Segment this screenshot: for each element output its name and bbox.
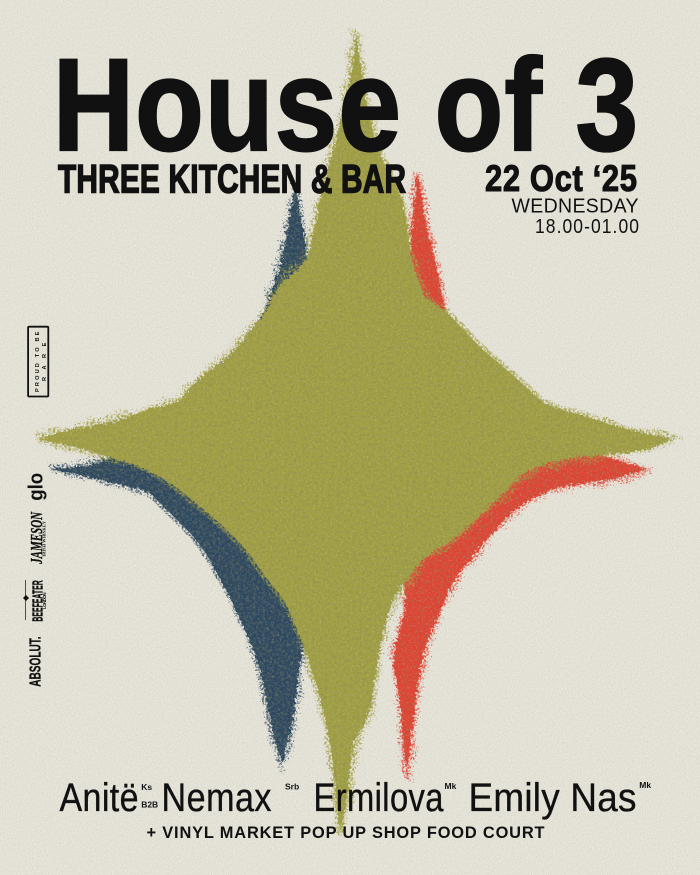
svg-text:Emily Nas: Emily Nas bbox=[469, 776, 637, 821]
svg-text:18.00-01.00: 18.00-01.00 bbox=[535, 215, 639, 237]
svg-text:Ks: Ks bbox=[141, 782, 152, 792]
svg-text:Mk: Mk bbox=[639, 780, 651, 790]
svg-text:ABSOLUT.: ABSOLUT. bbox=[28, 636, 45, 686]
svg-text:Mk: Mk bbox=[445, 781, 457, 791]
svg-text:PROUD TO BE: PROUD TO BE bbox=[35, 331, 41, 392]
svg-text:LONDON: LONDON bbox=[42, 592, 47, 609]
svg-text:22 Oct ‘25: 22 Oct ‘25 bbox=[485, 158, 637, 199]
svg-text:Anitë: Anitë bbox=[60, 776, 139, 820]
svg-text:+ VINYL MARKET POP UP SHOP F: + VINYL MARKET POP UP SHOP FOOD COURT bbox=[147, 824, 545, 842]
svg-text:THREE KITCHEN & BAR: THREE KITCHEN & BAR bbox=[58, 157, 406, 201]
svg-text:IRISH WHISKEY: IRISH WHISKEY bbox=[41, 520, 46, 556]
svg-text:glo: glo bbox=[25, 473, 47, 501]
svg-text:B2B: B2B bbox=[141, 800, 158, 810]
svg-text:House of 3: House of 3 bbox=[53, 32, 638, 178]
svg-text:Srb: Srb bbox=[285, 782, 299, 792]
svg-text:Nemax: Nemax bbox=[162, 774, 272, 819]
svg-text:Ermilova: Ermilova bbox=[314, 775, 445, 820]
